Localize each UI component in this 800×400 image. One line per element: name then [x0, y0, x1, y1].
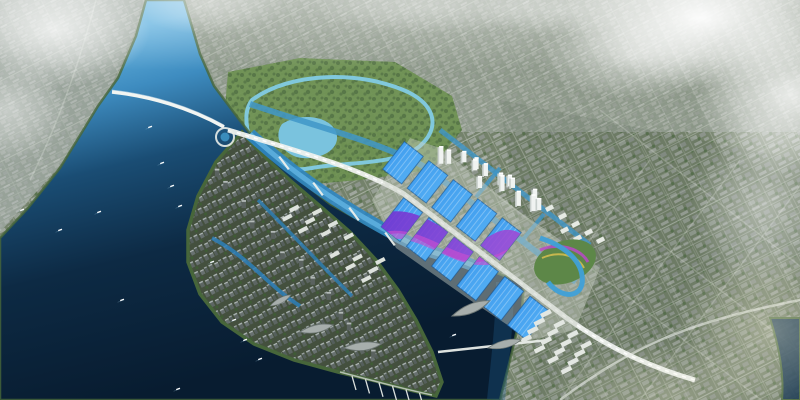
aerial-rendering-canvas — [0, 0, 800, 400]
aerial-city-rendering — [0, 0, 800, 400]
